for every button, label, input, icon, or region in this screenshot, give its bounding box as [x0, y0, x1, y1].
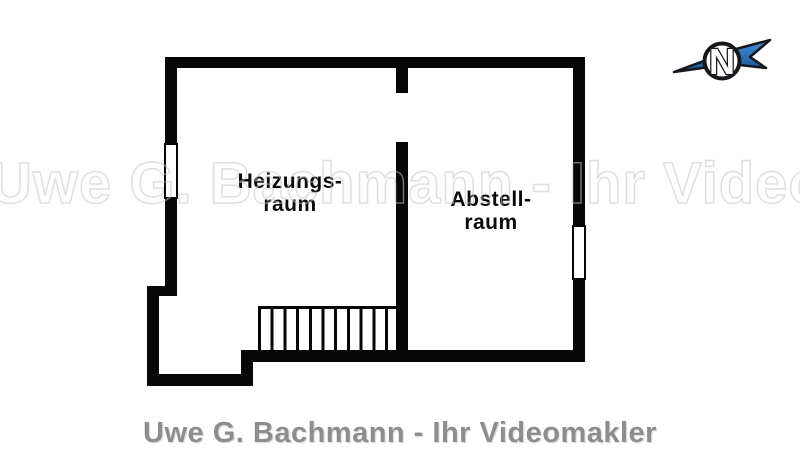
room-label-line: raum [410, 211, 572, 234]
room-label-line: raum [180, 193, 400, 216]
floor-plan-canvas: Heizungs- raum Abstell- raum N Uwe G. Ba… [0, 0, 800, 450]
room-label-line: Abstell- [410, 188, 572, 211]
wall-bottom-main [241, 350, 585, 362]
window-right [572, 225, 586, 280]
room-label-heizungsraum: Heizungs- raum [180, 170, 400, 216]
window-left [164, 143, 178, 199]
stairs [258, 306, 398, 350]
north-compass-icon: N [670, 36, 778, 90]
footer-branding-text: Uwe G. Bachmann - Ihr Videomakler [0, 417, 800, 450]
wall-right [573, 57, 585, 362]
wall-bottom-left [147, 374, 253, 386]
room-label-line: Heizungs- [180, 170, 400, 193]
wall-top [165, 57, 585, 68]
wall-left-lower [147, 286, 159, 386]
room-label-abstellraum: Abstell- raum [410, 188, 572, 234]
compass-north-letter: N [709, 41, 735, 82]
wall-interior-stub [396, 57, 408, 93]
